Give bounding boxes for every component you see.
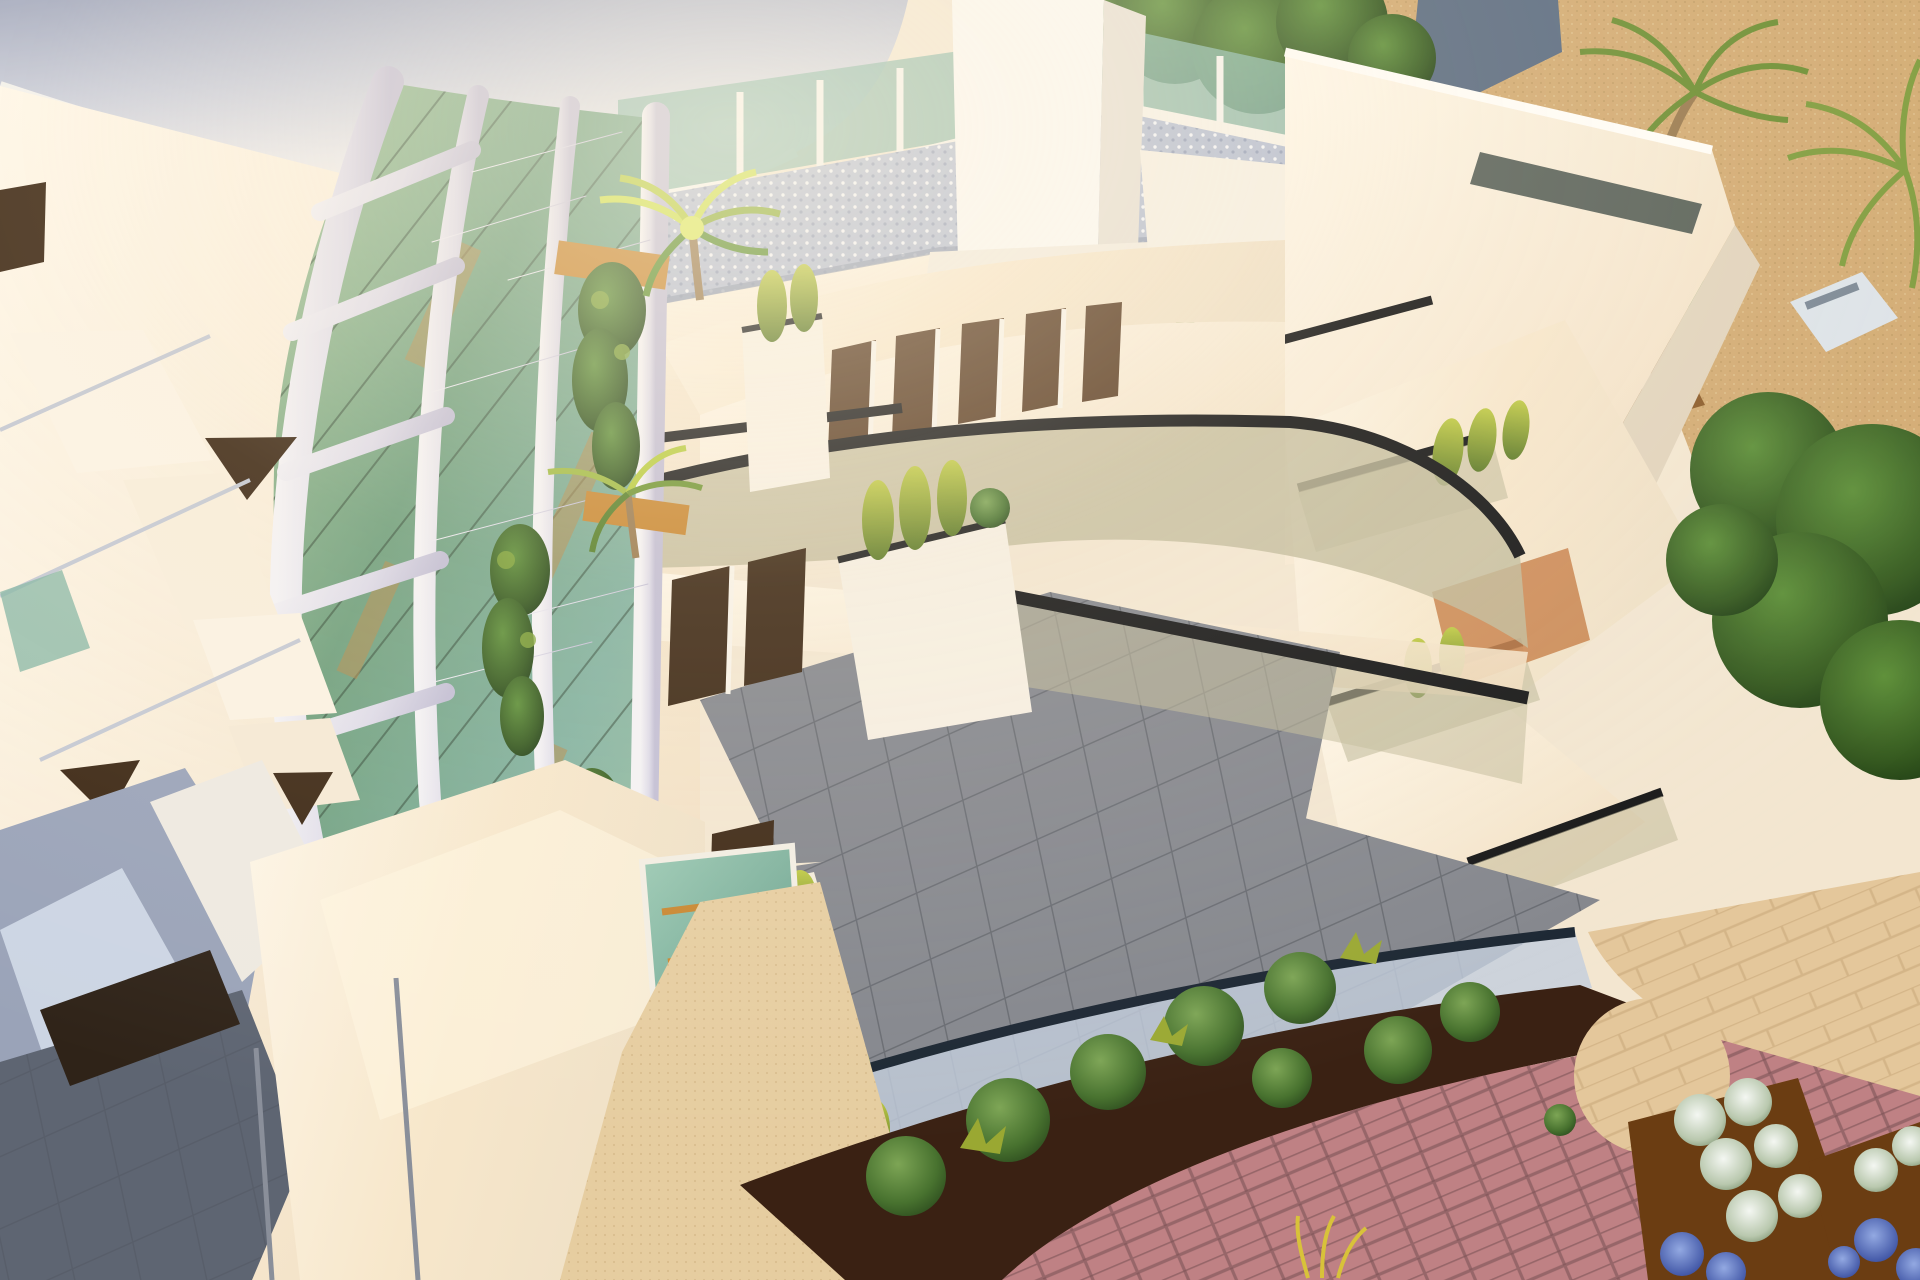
sunlight-overlay [0, 0, 1920, 1280]
architectural-render [0, 0, 1920, 1280]
render-canvas [0, 0, 1920, 1280]
